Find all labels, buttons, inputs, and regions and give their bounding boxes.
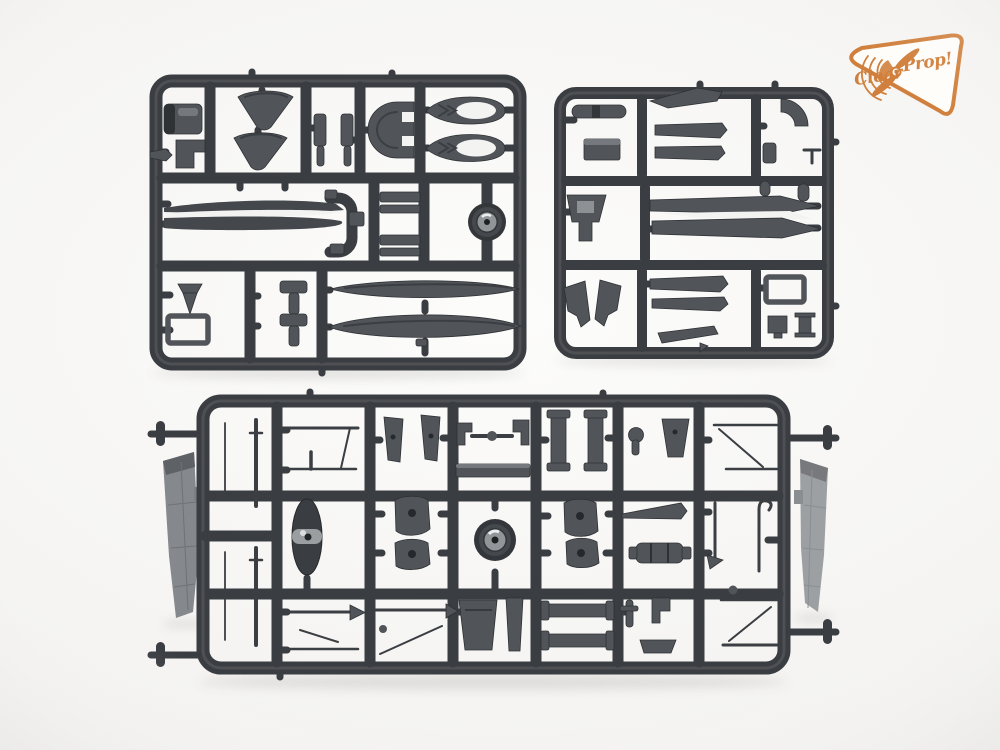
photo-vignette <box>0 0 1000 750</box>
photo-canvas: Clear Prop! <box>0 0 1000 750</box>
photo-scene: Clear Prop! <box>0 0 1000 750</box>
